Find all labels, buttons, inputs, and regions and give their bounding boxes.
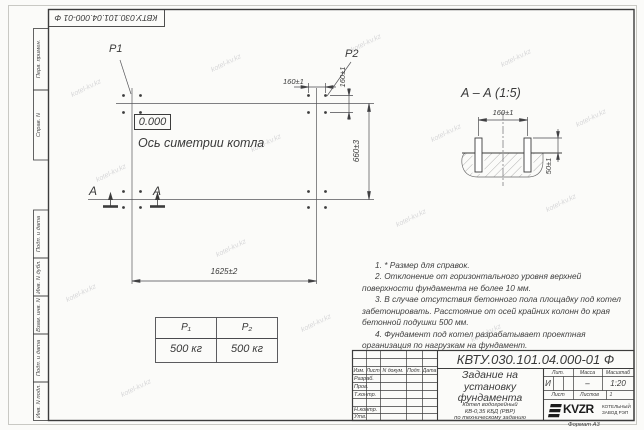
- dim-bolt-spacing-horizontal: 160±1: [283, 77, 304, 86]
- elevation-mark: 0.000: [134, 114, 171, 130]
- section-title: А – А (1:5): [461, 86, 521, 100]
- section-letter-left: А: [89, 184, 97, 198]
- lit-value: И: [543, 379, 553, 388]
- kvzr-logo-mark: [548, 403, 562, 419]
- load-table-header-p2: P₂: [217, 322, 277, 333]
- margin-label-sprav-n: Справ. N: [36, 95, 46, 155]
- sign-header-ndokum: N докум.: [380, 368, 406, 374]
- note-4: 4. Фундамент под котел разрабатывает про…: [362, 329, 632, 352]
- kvzr-logo: KVZR КОТЕЛЬНЫЙ ЗАВОД РЭП: [545, 400, 633, 420]
- load-point-p1-label: P1: [109, 43, 122, 55]
- title-block-title: Задание на установку фундамента: [437, 370, 543, 405]
- title-block-subtitle-line2: КВ-0,35 КБД (РВР): [437, 409, 543, 415]
- kvzr-logo-caption-line2: ЗАВОД РЭП: [602, 410, 628, 415]
- title-block-subtitle-line3: по техническому заданию: [437, 415, 543, 421]
- sign-header-list: Лист: [366, 368, 380, 374]
- note-1: 1. * Размер для справок.: [362, 260, 632, 271]
- format-note: Формат А3: [568, 422, 600, 428]
- dim-foundation-height: 660±3: [351, 131, 361, 171]
- dim-bolt-spacing-vertical: 160±1: [337, 61, 347, 93]
- plan-axes: [88, 60, 374, 284]
- sign-row-nkontr: Н.контр.: [354, 407, 377, 413]
- sign-header-data: Дата: [422, 368, 437, 374]
- load-table-header-p1: P₁: [156, 322, 216, 333]
- scale-value: 1:20: [602, 379, 634, 388]
- section-letter-right: А: [153, 184, 161, 198]
- dim-foundation-width: 1625±2: [198, 267, 250, 276]
- sign-row-prov: Пров.: [354, 384, 369, 390]
- sheet-label: Лист: [543, 392, 573, 398]
- plan-dimensions: [132, 83, 371, 283]
- technical-notes: 1. * Размер для справок. 2. Отклонение о…: [362, 260, 632, 352]
- title-block-doc-number: КВТУ.030.101.04.000-01 Ф: [437, 351, 634, 368]
- kvzr-logo-text: KVZR: [563, 402, 594, 416]
- note-3: 3. В случае отсутствия бетонного пола пл…: [362, 294, 632, 328]
- mass-value: –: [573, 379, 602, 388]
- sign-row-utv: Утв.: [354, 414, 367, 420]
- sign-row-tkontr: Т.контр.: [354, 392, 376, 398]
- sign-header-podp: Подп.: [406, 368, 422, 374]
- top-stamp-doc-number: КВТУ.030.101.04.000-01 Ф: [48, 10, 164, 26]
- dim-section-bolt-spacing: 160±1: [485, 108, 521, 117]
- sign-row-razrab: Разраб.: [354, 376, 374, 382]
- scale-header: Масштаб: [602, 370, 634, 376]
- kvzr-logo-caption-line1: КОТЕЛЬНЫЙ: [602, 404, 631, 409]
- margin-label-inv-podl: Инв. N подл.: [36, 371, 46, 430]
- lit-header: Лит.: [543, 370, 573, 376]
- sign-header-izm: Изм.: [352, 368, 366, 374]
- sheets-value: 1: [606, 392, 616, 398]
- margin-label-perv-primen: Перв. примен.: [36, 29, 46, 89]
- boiler-symmetry-axis-label: Ось симетрии котла: [138, 136, 264, 150]
- load-table-value-p2: 500 кг: [217, 343, 277, 355]
- title-block-subtitle-line1: Котел водогрейный: [437, 402, 543, 408]
- mass-header: Масса: [573, 370, 602, 376]
- note-2: 2. Отклонение от горизонтального уровня …: [362, 271, 632, 294]
- drawing-sheet: kotel-kv.kz kotel-kv.kz kotel-kv.kz kote…: [0, 0, 644, 430]
- dim-section-bolt-protrusion: 50±1: [543, 152, 553, 180]
- sheets-label: Листов: [573, 392, 606, 398]
- load-point-p2-label: P2: [345, 48, 358, 60]
- load-table-value-p1: 500 кг: [156, 343, 216, 355]
